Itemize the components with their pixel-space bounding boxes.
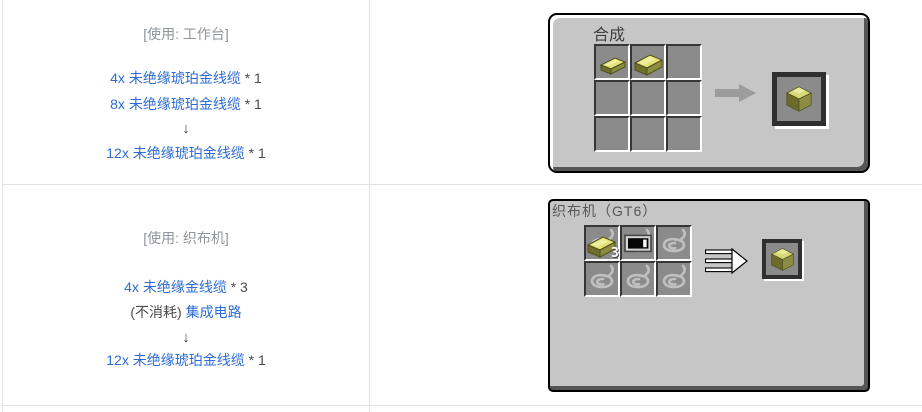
input-line: (不消耗) 集成电路 xyxy=(3,304,369,321)
gui-title: 合成 xyxy=(593,21,625,45)
cable-block-icon[interactable] xyxy=(784,84,814,114)
item-link[interactable]: 4x 未绝缘金线缆 xyxy=(124,279,227,295)
input-line: 4x 未绝缘金线缆 * 3 xyxy=(3,279,369,296)
loom-slot xyxy=(584,261,620,297)
string-ghost-icon xyxy=(586,263,618,295)
crafting-grid xyxy=(594,44,702,152)
output-suffix: * 1 xyxy=(245,145,266,161)
loom-grid: 3 xyxy=(584,225,692,297)
crafting-recipe-text-cell: [使用: 工作台] 4x 未绝缘琥珀金线缆 * 1 8x 未绝缘琥珀金线缆 * … xyxy=(3,0,369,184)
crafting-slot-empty xyxy=(594,116,630,152)
loom-slot xyxy=(620,261,656,297)
crafting-slot xyxy=(630,44,666,80)
item-count-badge: 3 xyxy=(611,246,619,261)
item-link[interactable]: 8x 未绝缘琥珀金线缆 xyxy=(110,96,241,112)
crafting-slot-empty xyxy=(666,80,702,116)
cable-block-icon[interactable] xyxy=(769,246,796,273)
loom-recipe-text-cell: [使用: 织布机] 4x 未绝缘金线缆 * 3 (不消耗) 集成电路 ↓ 12x… xyxy=(3,185,369,405)
crafting-slot-empty xyxy=(630,116,666,152)
string-ghost-icon xyxy=(658,263,690,295)
input-line: 8x 未绝缘琥珀金线缆 * 1 xyxy=(3,96,369,113)
input-prefix: (不消耗) xyxy=(130,304,185,320)
item-link[interactable]: 12x 未绝缘琥珀金线缆 xyxy=(106,352,244,368)
result-arrow-icon xyxy=(715,81,759,105)
station-header: [使用: 织布机] xyxy=(3,230,369,247)
string-ghost-icon xyxy=(658,227,690,259)
input-suffix: * 3 xyxy=(227,279,248,295)
down-arrow-icon: ↓ xyxy=(3,120,369,137)
crafting-slot-empty xyxy=(594,80,630,116)
output-line: 12x 未绝缘琥珀金线缆 * 1 xyxy=(3,145,369,162)
output-line: 12x 未绝缘琥珀金线缆 * 1 xyxy=(3,352,369,369)
crafting-slot-empty xyxy=(630,80,666,116)
crafting-gui-cell: 合成 xyxy=(370,0,922,184)
output-slot xyxy=(772,72,826,126)
integrated-circuit-icon[interactable] xyxy=(622,227,654,259)
item-link[interactable]: 4x 未绝缘琥珀金线缆 xyxy=(110,70,241,86)
gui-title: 织布机（GT6） xyxy=(552,201,657,221)
loom-gui-panel: 织布机（GT6） xyxy=(548,199,870,392)
string-ghost-icon xyxy=(622,263,654,295)
crafting-slot xyxy=(594,44,630,80)
loom-slot xyxy=(620,225,656,261)
output-suffix: * 1 xyxy=(245,352,266,368)
crafting-slot-empty xyxy=(666,44,702,80)
crafting-gui-panel: 合成 xyxy=(548,13,870,173)
loom-slot xyxy=(656,261,692,297)
table-bottom-border xyxy=(2,405,922,406)
cable-item-icon[interactable] xyxy=(632,47,664,79)
recipe-table: [使用: 工作台] 4x 未绝缘琥珀金线缆 * 1 8x 未绝缘琥珀金线缆 * … xyxy=(0,0,922,412)
cable-item-icon[interactable] xyxy=(597,49,629,81)
loom-gui-cell: 织布机（GT6） xyxy=(370,185,922,405)
input-suffix: * 1 xyxy=(241,96,262,112)
down-arrow-icon: ↓ xyxy=(3,329,369,346)
item-link[interactable]: 集成电路 xyxy=(186,304,242,320)
loom-result-arrow-icon xyxy=(705,247,749,275)
item-link[interactable]: 12x 未绝缘琥珀金线缆 xyxy=(106,145,244,161)
input-suffix: * 1 xyxy=(241,70,262,86)
station-header: [使用: 工作台] xyxy=(3,26,369,43)
crafting-slot-empty xyxy=(666,116,702,152)
input-line: 4x 未绝缘琥珀金线缆 * 1 xyxy=(3,70,369,87)
loom-slot xyxy=(656,225,692,261)
output-slot xyxy=(762,239,802,279)
